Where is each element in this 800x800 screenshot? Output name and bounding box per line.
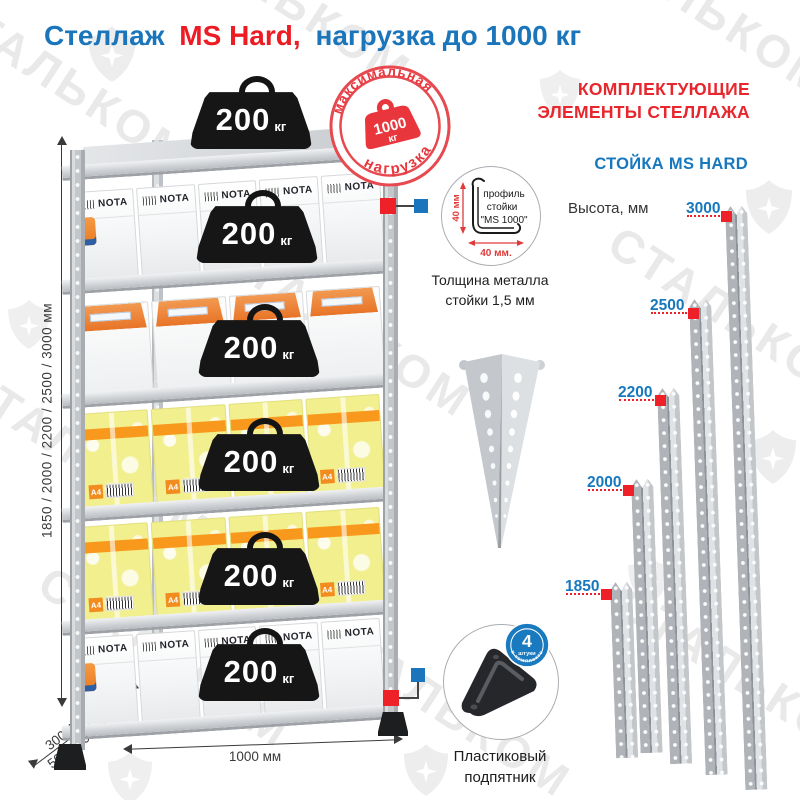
barcode — [143, 642, 157, 652]
page-title: Стеллаж MS Hard, нагрузка до 1000 кг — [44, 20, 581, 52]
post-perspective-view — [452, 350, 552, 562]
a4-label: A4 — [166, 479, 181, 494]
weight-unit: кг — [280, 233, 292, 248]
profile-label-line3: "MS 1000" — [480, 215, 528, 226]
red-square-marker — [655, 395, 666, 406]
weight-200kg: 200кг — [198, 418, 320, 494]
a4-label: A4 — [89, 597, 104, 612]
barcode — [143, 196, 157, 206]
weight-200kg: 200кг — [198, 628, 320, 704]
shield-logo-watermark — [750, 430, 796, 484]
paper-box-white: NOTA — [136, 630, 200, 722]
box-lid — [75, 302, 149, 332]
paper-box-white: NOTA — [321, 618, 385, 710]
weight-value: 200 — [224, 558, 279, 594]
box-brand-label: NOTA — [344, 626, 374, 639]
rack-foot-right — [378, 712, 408, 736]
heading-line2: ЭЛЕМЕНТЫ СТЕЛЛАЖА — [537, 101, 750, 124]
dotted-leader-line — [566, 593, 600, 595]
weight-value: 200 — [216, 102, 271, 138]
callout-line — [417, 681, 419, 698]
a4-label: A4 — [89, 484, 104, 499]
weight-value: 200 — [224, 330, 279, 366]
profile-label-line1: профиль — [483, 188, 524, 200]
callout-red-square-foot — [383, 690, 399, 706]
weight-200kg: 200кг — [198, 304, 320, 380]
arrow-icon — [460, 182, 466, 189]
callout-red-square-post — [380, 198, 396, 214]
height-units-label: Высота, мм — [568, 200, 648, 217]
weight-unit: кг — [274, 119, 286, 134]
title-model: MS Hard, — [179, 20, 300, 51]
paper-box-yellow: A4 — [74, 409, 154, 508]
callout-line — [399, 697, 419, 699]
post-profile-drawing: 40 мм 40 мм. профиль стойки "MS 1000" — [442, 167, 540, 265]
a4-label: A4 — [166, 592, 181, 607]
dotted-leader-line — [651, 312, 687, 314]
weight-200kg: 200кг — [190, 76, 312, 152]
dotted-leader-line — [619, 399, 654, 401]
paper-box-white: NOTA — [136, 184, 200, 276]
height-dimension-label: 1850 / 2000 / 2200 / 2500 / 3000 мм — [40, 141, 55, 701]
barcode — [105, 482, 134, 498]
paper-box-orange-lid — [74, 301, 154, 394]
arrow-left-icon — [123, 744, 132, 754]
weight-unit: кг — [282, 461, 294, 476]
callout-blue-square-foot — [411, 668, 425, 682]
arrow-icon — [468, 240, 475, 246]
quantity-badge: 4 штуки в комплекте — [504, 622, 550, 668]
profile-label-line2: стойки — [487, 202, 518, 213]
a4-label: A4 — [320, 582, 335, 597]
paper-box-yellow: A4 — [74, 522, 154, 621]
upright-post-3000 — [725, 206, 767, 790]
weight-200kg: 200кг — [196, 190, 318, 266]
caption-line1: Пластиковый — [420, 746, 580, 767]
barcode — [105, 595, 134, 611]
weight-200kg: 200кг — [198, 532, 320, 608]
heading-line1: КОМПЛЕКТУЮЩИЕ — [537, 78, 750, 101]
badge-count: 4 — [522, 631, 532, 651]
caption-line2: подпятник — [420, 767, 580, 788]
box-brand-label: NOTA — [159, 639, 189, 652]
width-dimension-label: 1000 мм — [160, 749, 350, 764]
callout-blue-square-post — [414, 199, 428, 213]
weight-unit: кг — [282, 575, 294, 590]
arrow-icon — [460, 227, 466, 234]
box-brand-label: NOTA — [98, 643, 128, 656]
red-square-marker — [688, 308, 699, 319]
arrow-up-icon — [57, 136, 67, 145]
title-prefix: Стеллаж — [44, 20, 165, 51]
max-load-stamp: максимальная нагрузка 1000 кг — [326, 62, 454, 190]
box-brand-label: NOTA — [159, 193, 189, 206]
rack-foot-left — [54, 744, 86, 770]
badge-unit: штуки — [518, 651, 536, 657]
plastic-foot-caption: Пластиковый подпятник — [420, 746, 580, 788]
barcode — [327, 630, 341, 640]
profile-dim-horizontal: 40 мм. — [480, 248, 512, 259]
red-square-marker — [721, 211, 732, 222]
callout-line — [396, 205, 416, 207]
weight-value: 200 — [222, 216, 277, 252]
post-profile-detail-circle: 40 мм 40 мм. профиль стойки "MS 1000" — [441, 166, 541, 266]
barcode — [337, 467, 366, 483]
profile-dim-vertical: 40 мм — [451, 194, 462, 221]
barcode — [337, 580, 366, 596]
components-subheading: СТОЙКА MS HARD — [594, 155, 748, 174]
components-heading: КОМПЛЕКТУЮЩИЕ ЭЛЕМЕНТЫ СТЕЛЛАЖА — [537, 78, 750, 124]
caption-line1: Толщина металла — [404, 270, 576, 290]
metal-thickness-caption: Толщина металла стойки 1,5 мм — [404, 270, 576, 310]
box-brand-label: NOTA — [98, 197, 128, 210]
arrow-down-icon — [57, 698, 67, 707]
title-suffix: нагрузка до 1000 кг — [315, 20, 581, 51]
red-square-marker — [623, 485, 634, 496]
weight-unit: кг — [282, 347, 294, 362]
weight-value: 200 — [224, 444, 279, 480]
red-square-marker — [601, 589, 612, 600]
shield-logo-watermark — [108, 752, 152, 800]
height-dimension-line — [61, 142, 62, 702]
dotted-leader-line — [687, 215, 720, 217]
upright-post-2500 — [689, 299, 728, 775]
product-infographic: СТАЛЬКОМ СТАЛЬКОМ СТАЛЬКОМ СТАЛЬКОМ СТАЛ… — [0, 0, 800, 800]
shield-logo-watermark — [746, 180, 792, 234]
weight-value: 200 — [224, 654, 279, 690]
arrow-icon — [517, 240, 524, 246]
caption-line2: стойки 1,5 мм — [404, 290, 576, 310]
a4-label: A4 — [320, 469, 335, 484]
weight-unit: кг — [282, 671, 294, 686]
rack-front-post-left — [70, 150, 85, 750]
dotted-leader-line — [588, 489, 622, 491]
